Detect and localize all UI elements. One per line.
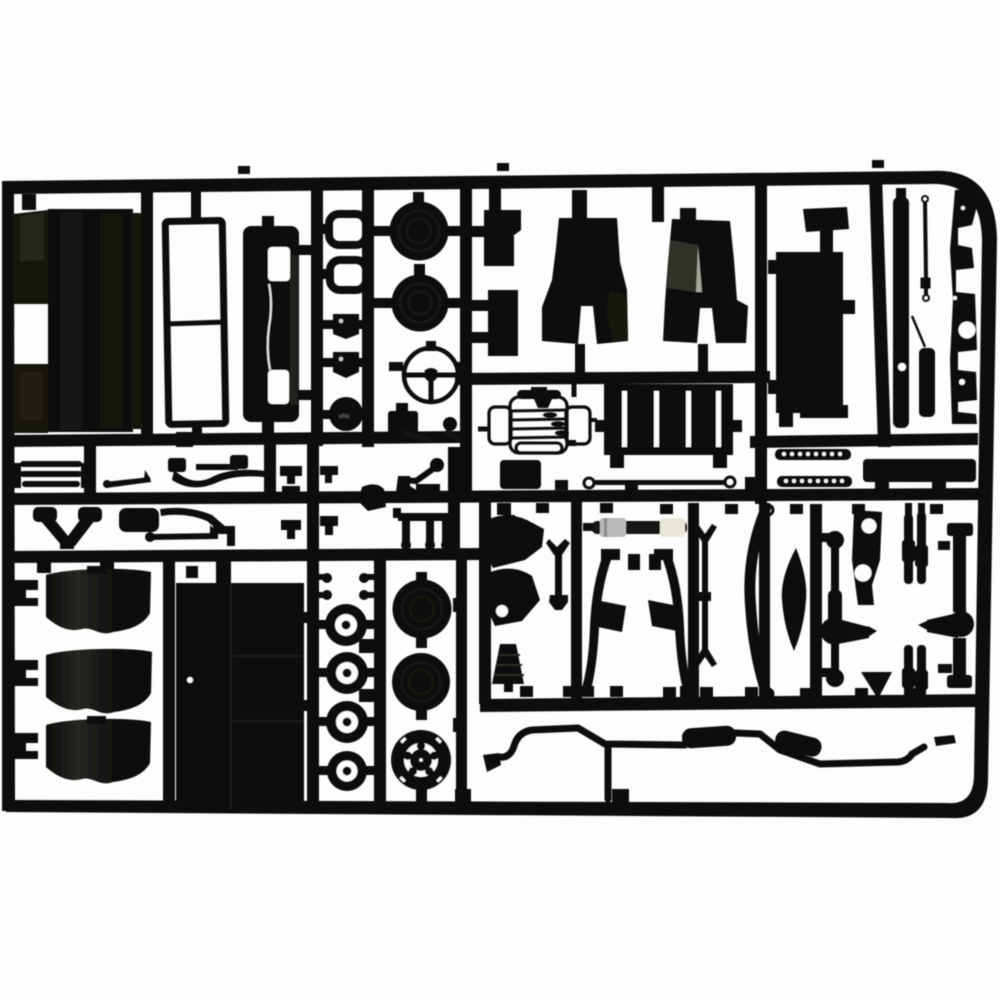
svg-text:uNx: uNx	[339, 414, 350, 420]
